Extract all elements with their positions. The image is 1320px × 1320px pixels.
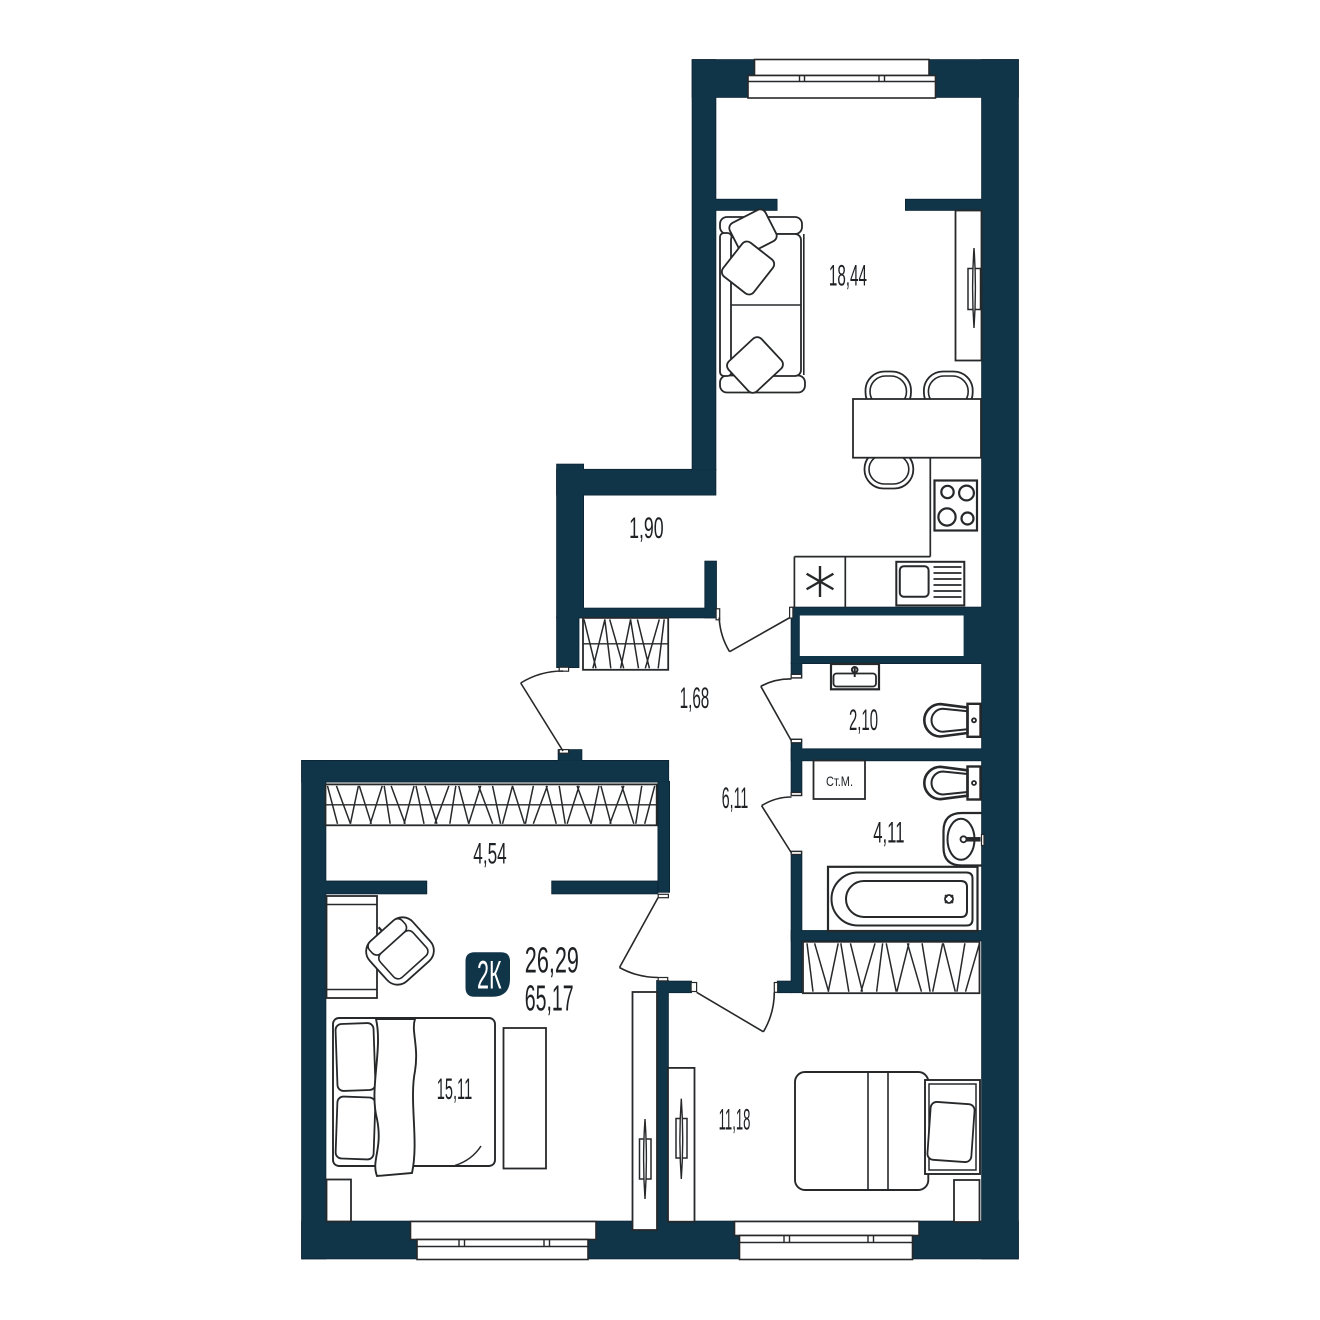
svg-text:65,17: 65,17: [525, 978, 574, 1019]
svg-text:Ст.М.: Ст.М.: [826, 773, 853, 789]
svg-text:2К: 2К: [477, 953, 502, 997]
svg-text:11,18: 11,18: [719, 1104, 751, 1137]
svg-text:1,68: 1,68: [680, 682, 710, 715]
svg-text:4,54: 4,54: [473, 838, 506, 871]
svg-text:6,11: 6,11: [722, 782, 749, 815]
svg-text:15,11: 15,11: [437, 1073, 472, 1106]
svg-text:4,11: 4,11: [873, 817, 904, 850]
svg-text:2,10: 2,10: [849, 704, 878, 737]
svg-text:1,90: 1,90: [629, 512, 664, 545]
svg-text:18,44: 18,44: [829, 260, 867, 293]
svg-text:26,29: 26,29: [525, 940, 579, 981]
